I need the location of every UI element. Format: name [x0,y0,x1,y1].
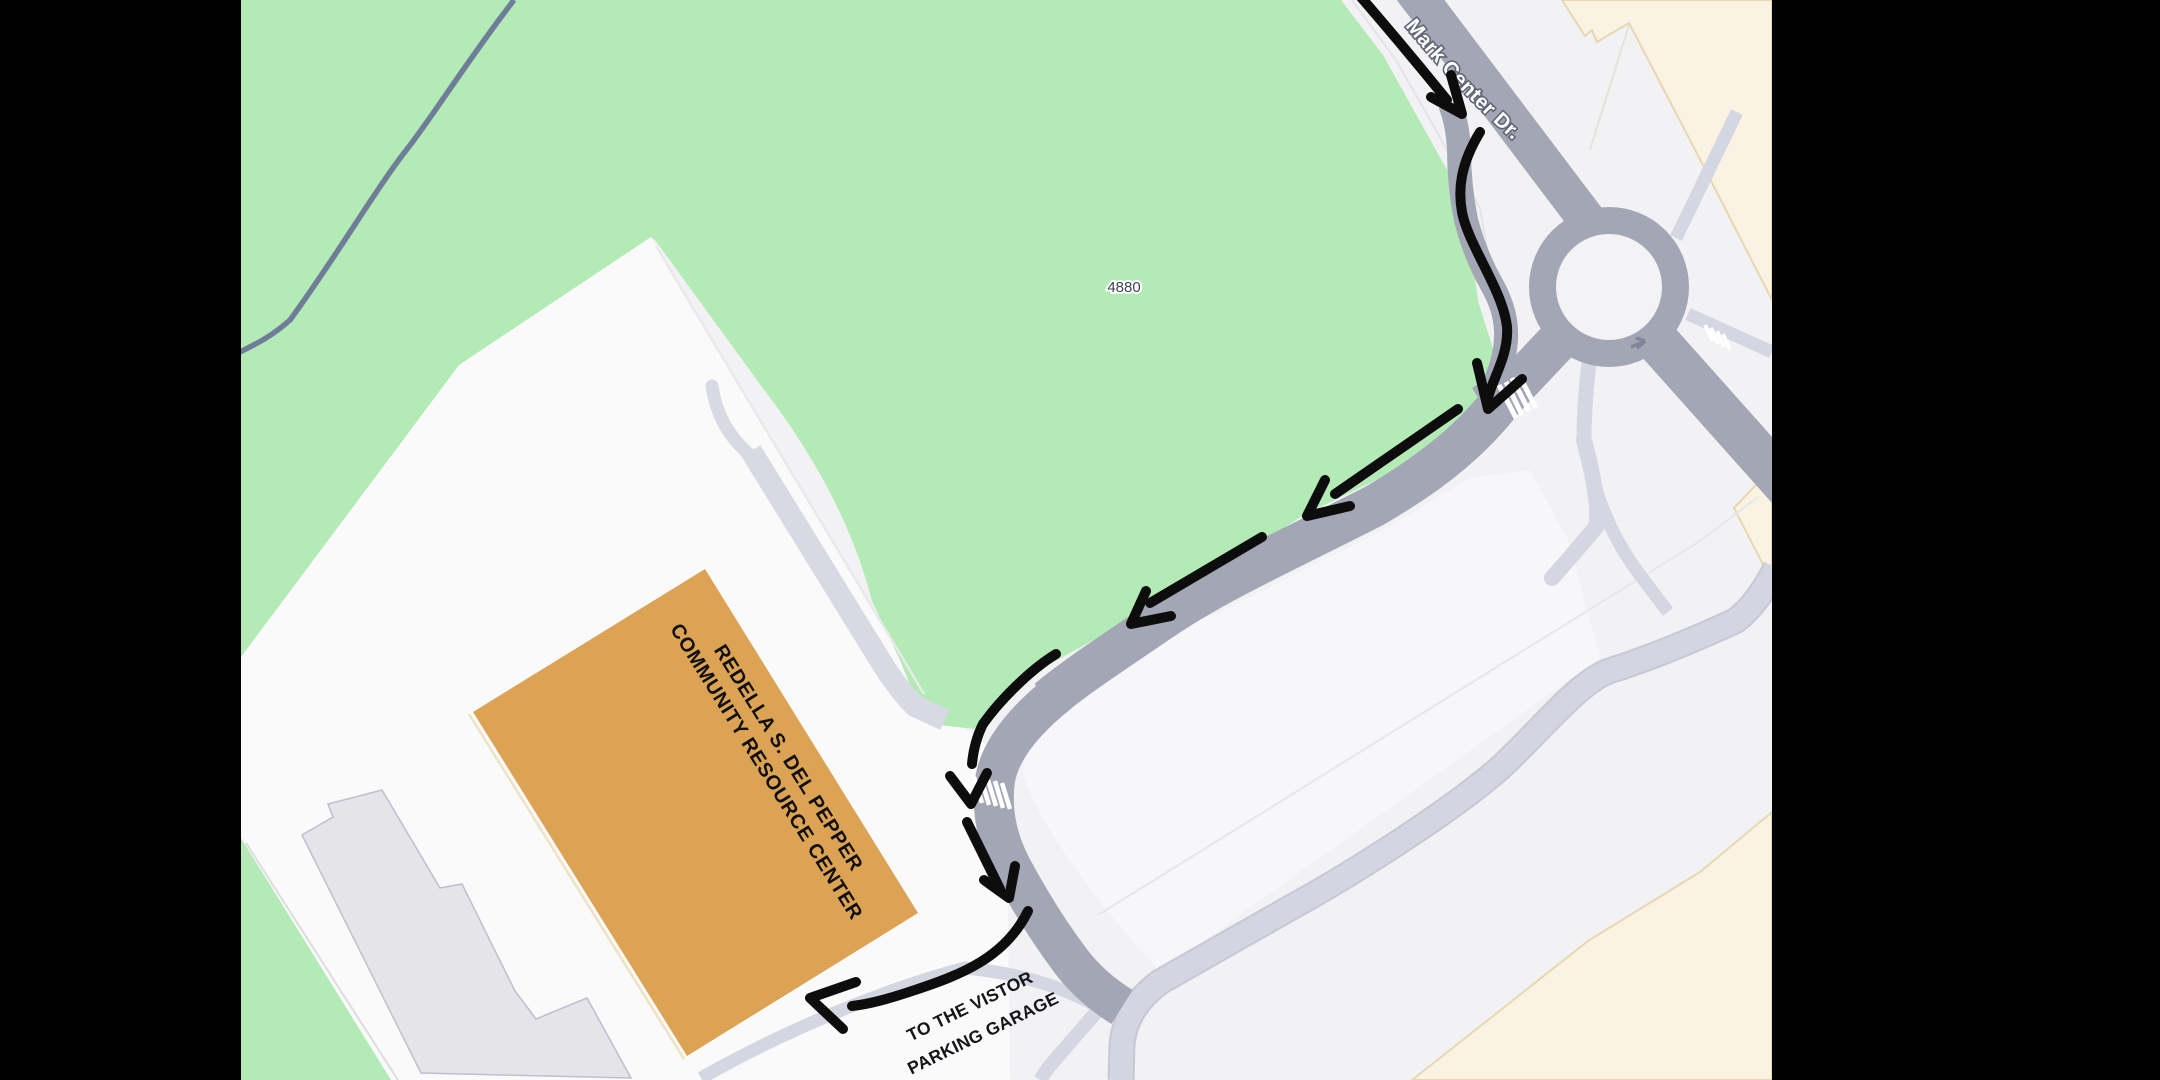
svg-text:4880: 4880 [1107,279,1140,296]
